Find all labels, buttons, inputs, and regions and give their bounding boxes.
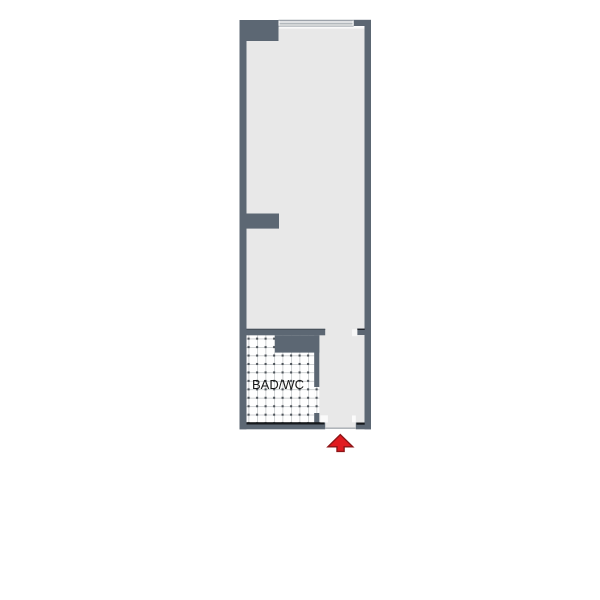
svg-text:BAD/WC: BAD/WC <box>252 377 304 392</box>
